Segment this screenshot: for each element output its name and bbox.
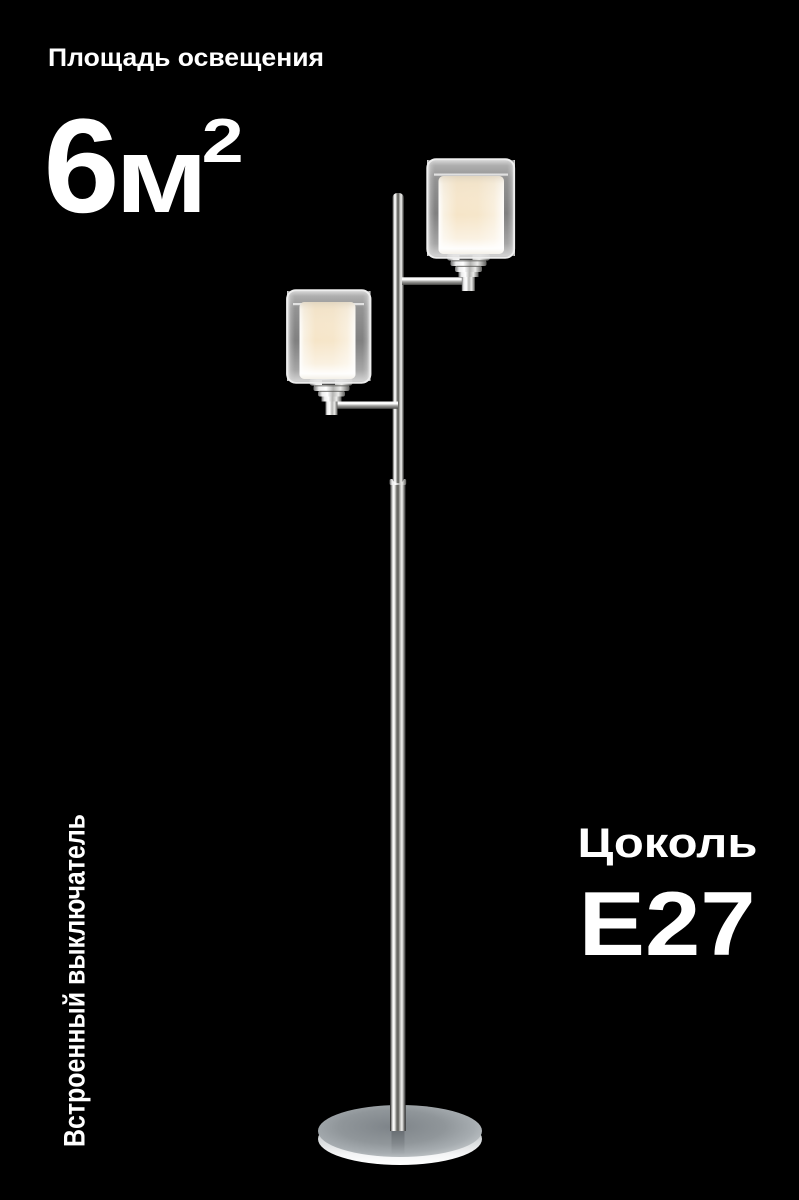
svg-text:2: 2	[202, 107, 244, 176]
svg-text:E27: E27	[579, 874, 756, 975]
svg-text:Цоколь: Цоколь	[578, 819, 758, 866]
svg-text:Площадь освещения: Площадь освещения	[48, 44, 324, 72]
svg-text:6: 6	[44, 92, 120, 241]
svg-text:Встроенный выключатель: Встроенный выключатель	[59, 814, 92, 1147]
svg-text:м: м	[115, 114, 208, 235]
